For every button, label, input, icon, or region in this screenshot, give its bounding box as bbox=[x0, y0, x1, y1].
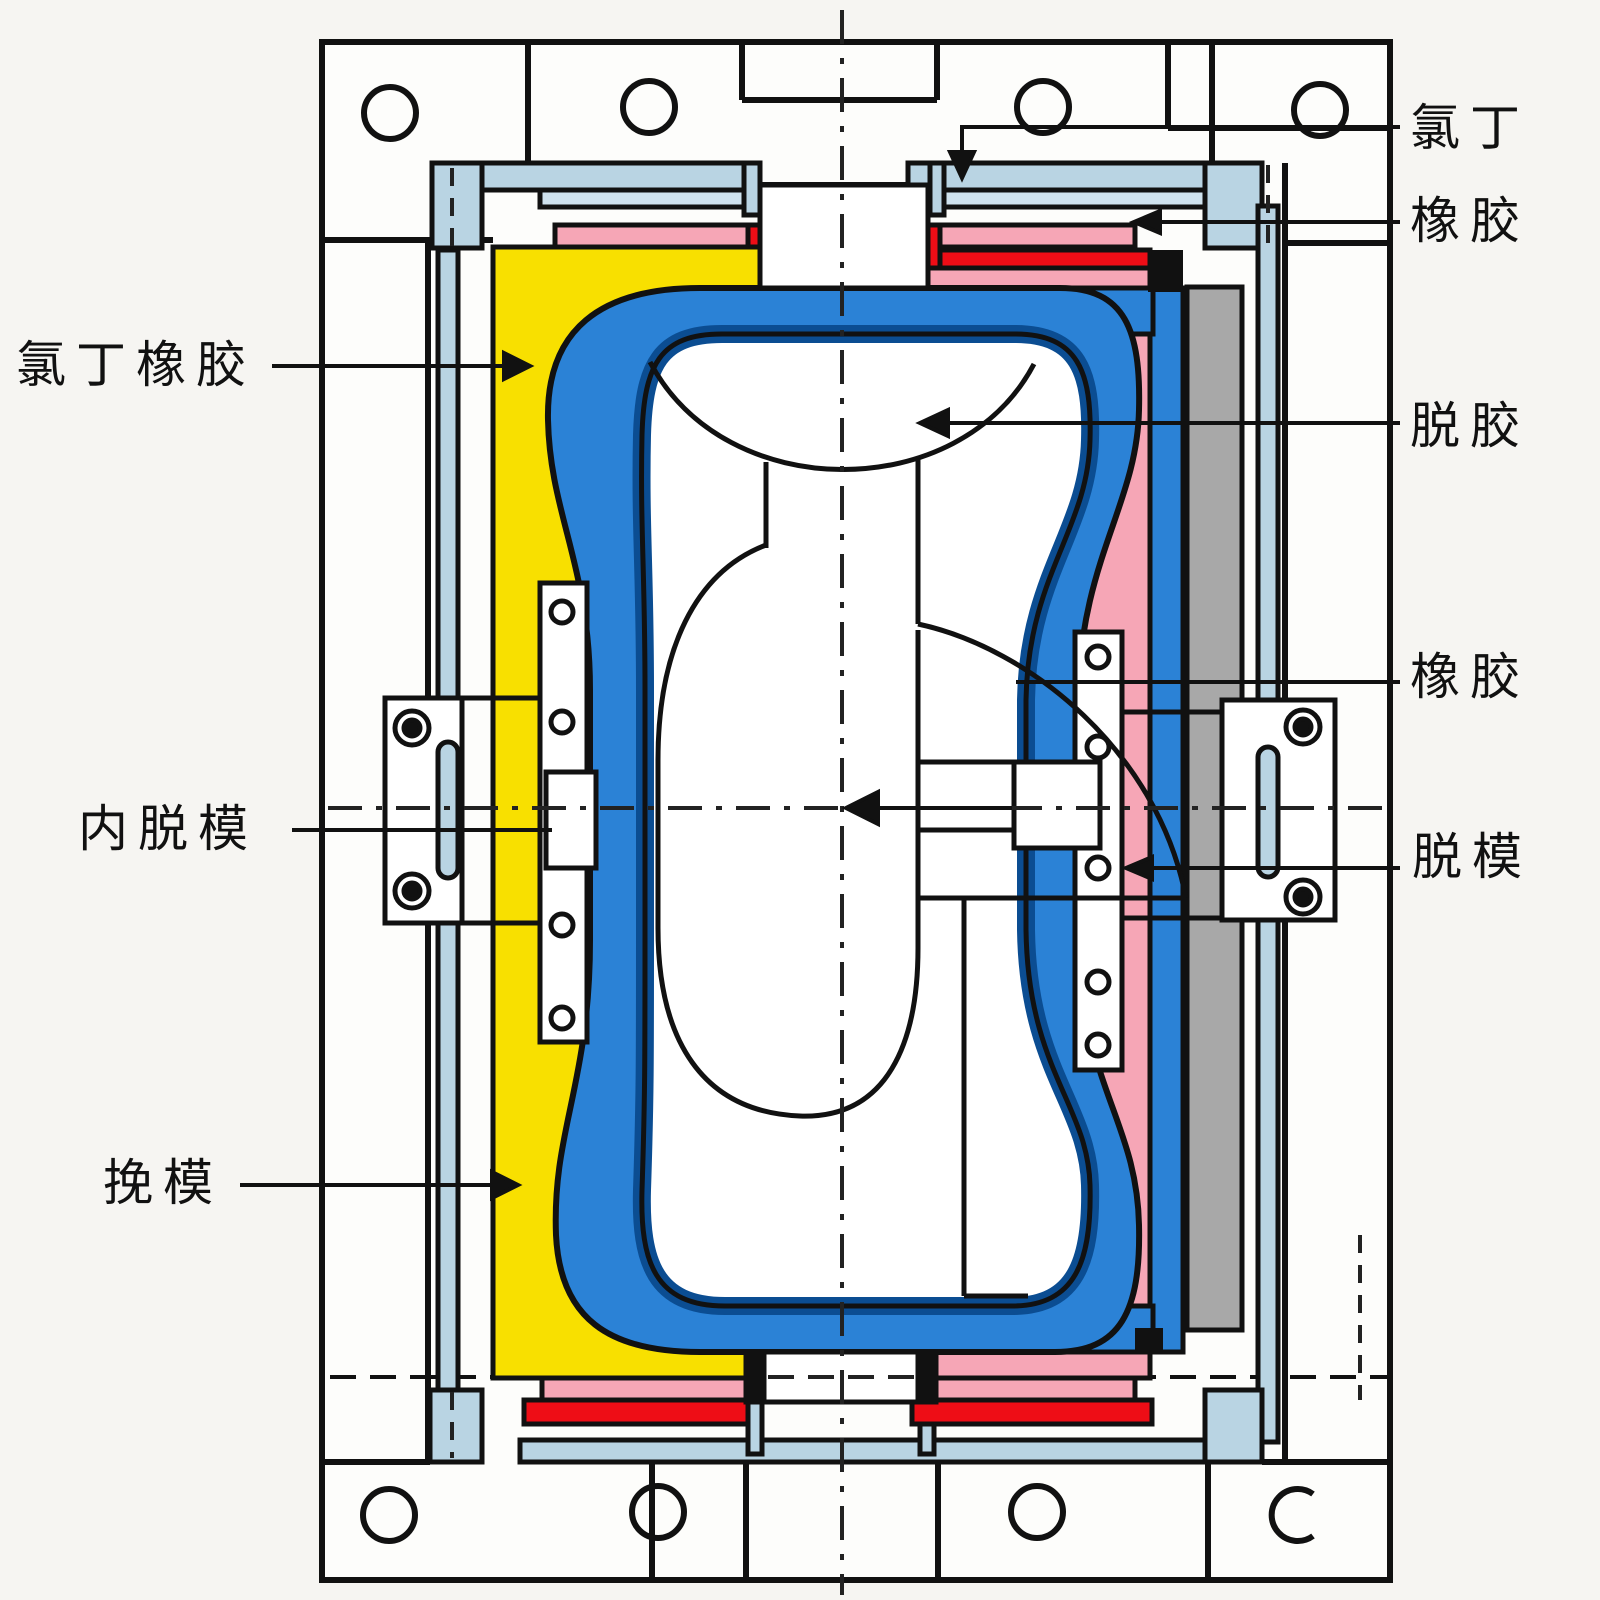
pink-layer bbox=[938, 225, 1135, 247]
ejector-plate-right bbox=[1075, 632, 1122, 1070]
bracket-slot bbox=[1258, 747, 1278, 877]
pink-layer bbox=[555, 225, 748, 247]
latch-right bbox=[1014, 762, 1100, 848]
label-demold: 脱模 bbox=[1412, 832, 1532, 882]
label-degum: 脱胶 bbox=[1410, 401, 1530, 451]
diagram-canvas bbox=[0, 0, 1600, 1600]
label-inner-demold: 内脱模 bbox=[78, 804, 258, 854]
label-pull-mold: 挽模 bbox=[103, 1158, 223, 1208]
pink-layer bbox=[912, 1378, 1135, 1400]
bladder-right-wall bbox=[1150, 288, 1183, 1352]
latch-left bbox=[546, 772, 596, 868]
red-layer bbox=[912, 1400, 1152, 1424]
label-chloroprene-rubber: 氯丁橡胶 bbox=[16, 340, 256, 390]
pink-layer bbox=[542, 1378, 748, 1400]
corner-block bbox=[1135, 1328, 1163, 1354]
label-rubber-mid: 橡胶 bbox=[1410, 652, 1530, 702]
mold-cross-section-diagram: 氯丁 橡胶 氯丁橡胶 脱胶 橡胶 内脱模 脱模 挽模 bbox=[0, 0, 1600, 1600]
label-chloroprene-top: 氯丁 bbox=[1410, 103, 1530, 153]
corner-block bbox=[1148, 250, 1183, 292]
red-layer bbox=[524, 1400, 748, 1424]
label-rubber-top: 橡胶 bbox=[1410, 196, 1530, 246]
